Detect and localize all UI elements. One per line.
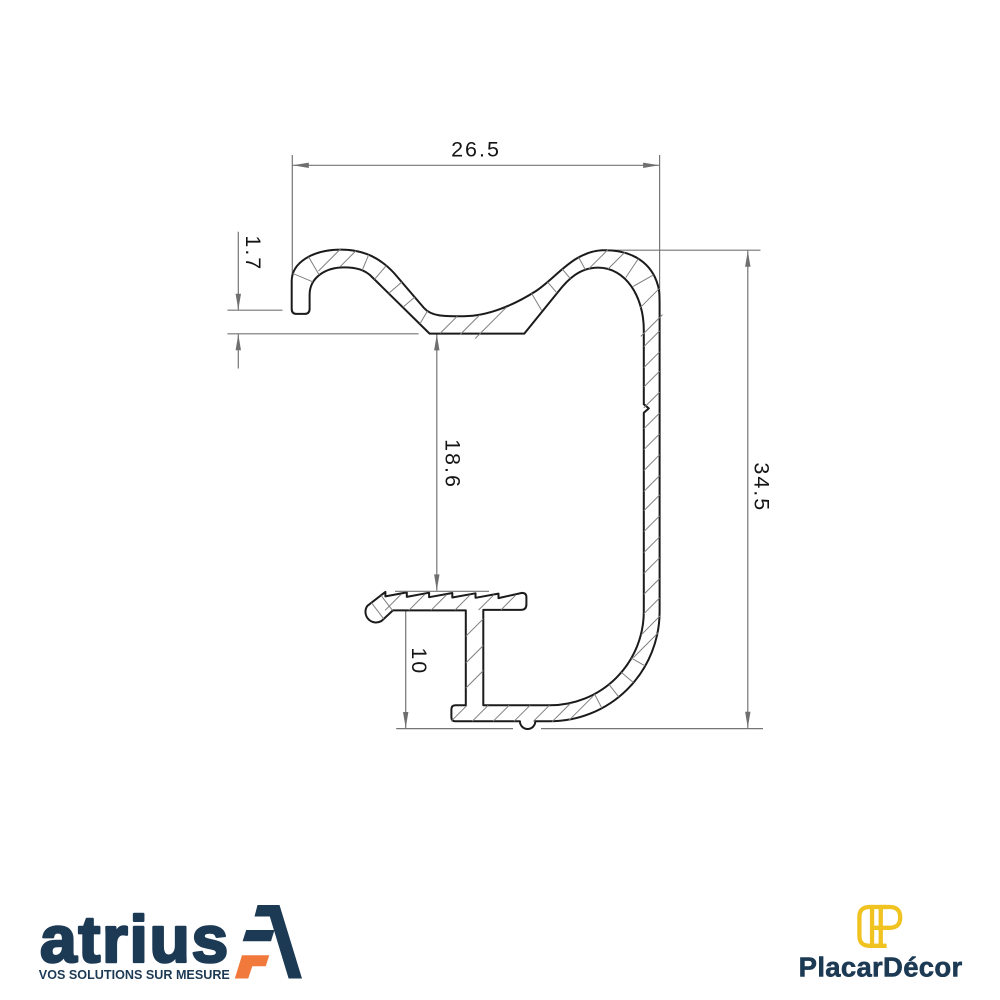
svg-text:VOS SOLUTIONS SUR MESURE: VOS SOLUTIONS SUR MESURE	[39, 968, 230, 982]
svg-text:1.7: 1.7	[241, 235, 265, 271]
svg-text:PlacarDécor: PlacarDécor	[799, 952, 963, 983]
svg-text:34.5: 34.5	[750, 462, 774, 512]
svg-text:atrius: atrius	[40, 902, 230, 976]
svg-text:26.5: 26.5	[451, 138, 501, 162]
svg-text:18.6: 18.6	[440, 439, 464, 489]
svg-text:10: 10	[407, 647, 431, 675]
